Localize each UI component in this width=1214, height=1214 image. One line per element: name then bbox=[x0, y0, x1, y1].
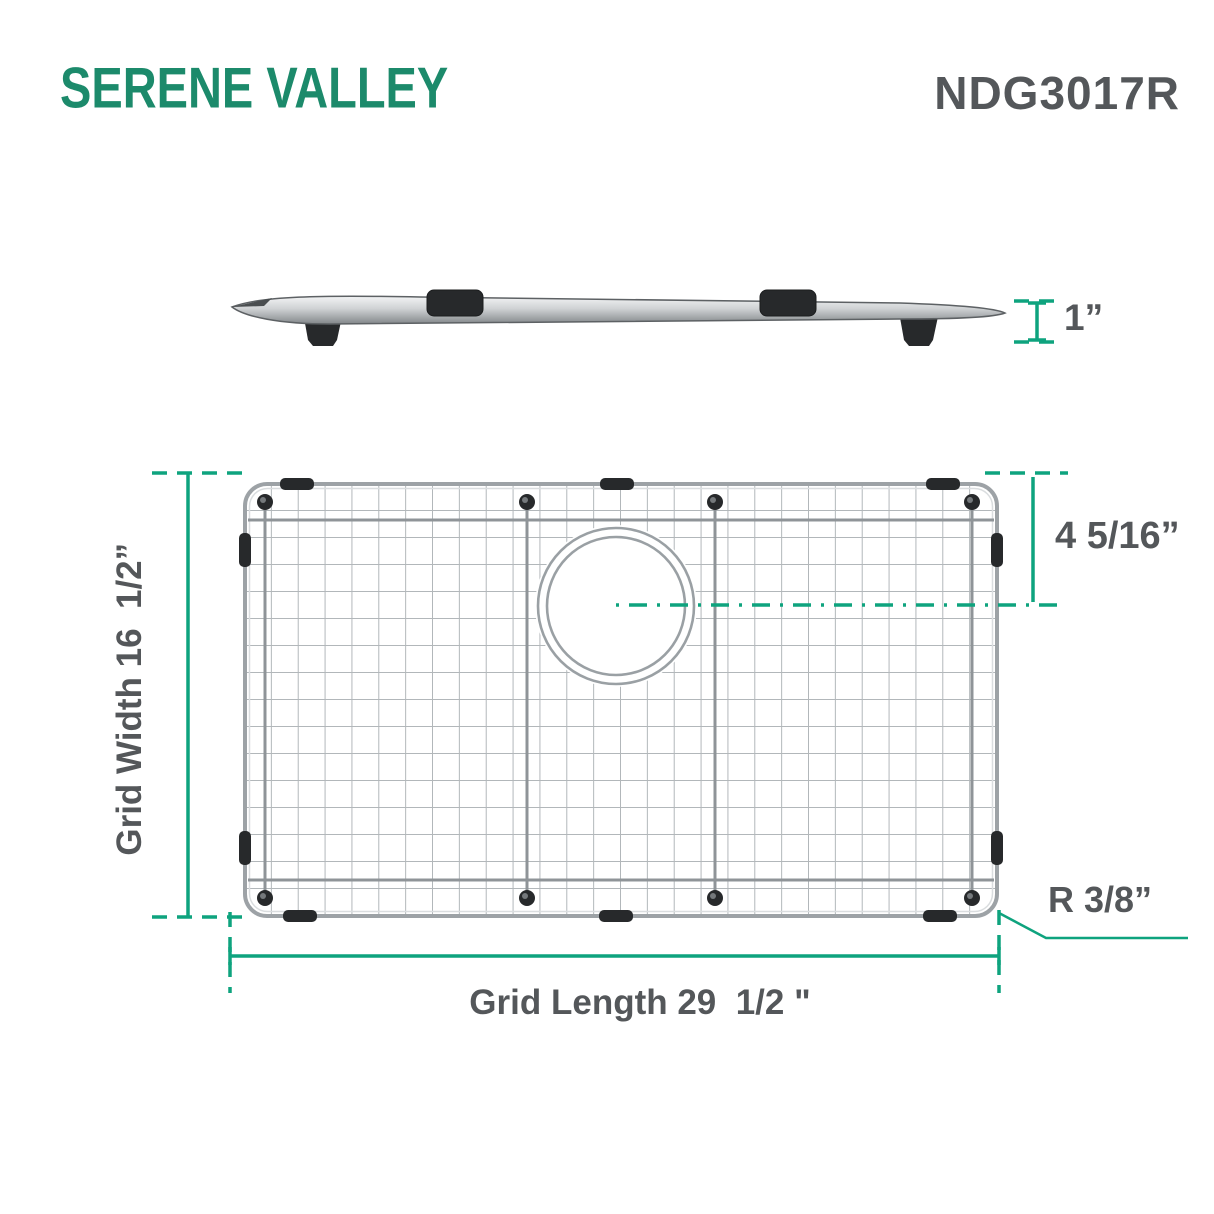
height-dim-label: 1” bbox=[1064, 298, 1103, 339]
model-number: NDG3017R bbox=[880, 66, 1180, 120]
grid-top-view bbox=[239, 478, 1003, 922]
width-dim-label: Grid Width 16 1/2” bbox=[111, 519, 150, 879]
diagram-graphics bbox=[0, 0, 1214, 1214]
product-dimension-diagram: SERENE VALLEY NDG3017R 1” Grid Width 16 … bbox=[0, 0, 1214, 1214]
length-dim-label: Grid Length 29 1/2 " bbox=[455, 984, 825, 1023]
side-clip-left bbox=[427, 290, 483, 316]
side-view bbox=[232, 290, 1064, 346]
side-bar bbox=[232, 296, 1005, 324]
radius-dim-label: R 3/8” bbox=[1048, 880, 1152, 920]
side-clip-right bbox=[760, 290, 816, 316]
brand-logo: SERENE VALLEY bbox=[60, 54, 448, 121]
drain-dim-label: 4 5/16” bbox=[1055, 516, 1180, 558]
